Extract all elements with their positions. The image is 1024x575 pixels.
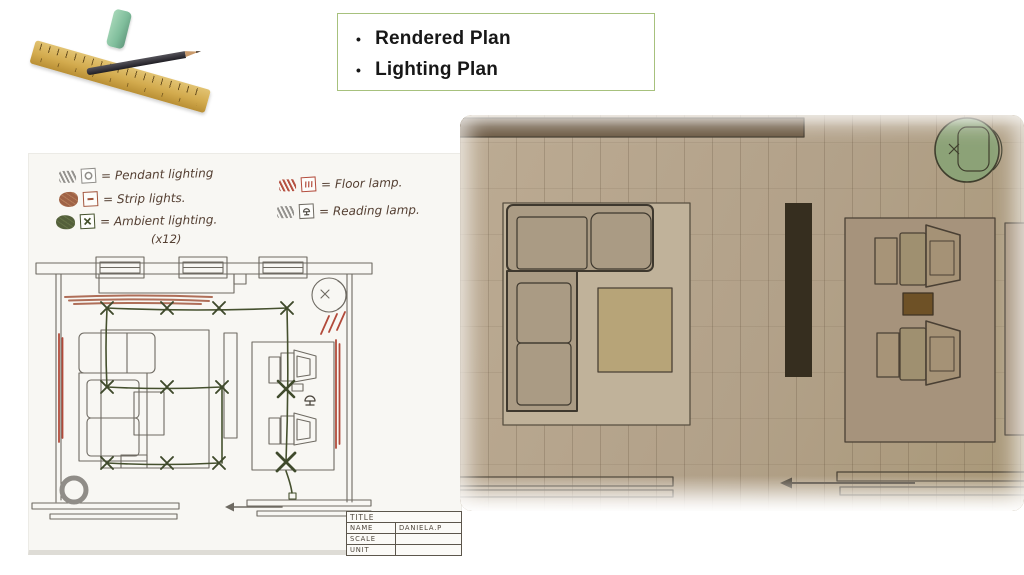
reading-lamp-symbol-icon — [299, 203, 315, 219]
legend-label: = Strip lights. — [103, 190, 186, 205]
agenda-item: • Rendered Plan — [350, 24, 642, 55]
legend-label: = Reading lamp. — [319, 202, 420, 218]
title-block: TITLE NAME DANIELA.P SCALE UNIT — [346, 511, 462, 556]
green-scribble-icon — [56, 215, 75, 229]
eraser-icon — [106, 8, 133, 49]
agenda-item: • Lighting Plan — [350, 55, 642, 86]
title-block-value — [396, 545, 461, 555]
agenda-list: • Rendered Plan • Lighting Plan — [350, 24, 642, 86]
title-block-label: NAME — [347, 523, 396, 533]
rendered-plan-photo — [460, 115, 1024, 511]
legend-item-pendant: = Pendant lighting — [59, 165, 214, 184]
rendered-plan-drawing — [460, 115, 1024, 511]
sofa-outline — [79, 333, 155, 468]
ambient-symbol-icon — [80, 213, 96, 229]
brown-scribble-icon — [59, 192, 78, 207]
agenda-item-label: Lighting Plan — [375, 55, 498, 86]
legend-label: = Ambient lighting. — [100, 212, 217, 228]
wall-band — [460, 118, 804, 137]
bullet-icon: • — [356, 28, 361, 51]
coffee-table — [598, 288, 672, 372]
pendant-plan-mark — [62, 478, 86, 502]
window-symbols — [96, 257, 307, 278]
gray-scribble-icon — [277, 205, 294, 217]
floor-lamp-symbol-icon — [301, 176, 317, 192]
stationery-clipart — [28, 6, 238, 116]
strip-lights-symbol-icon — [83, 191, 99, 207]
title-block-label: SCALE — [347, 534, 396, 544]
bottom-walls — [460, 472, 1024, 497]
dark-console — [785, 203, 812, 377]
slide: • Rendered Plan • Lighting Plan = Pendan… — [0, 0, 1024, 575]
lighting-plan-sketch: = Pendant lighting = Strip lights. = Amb… — [28, 153, 462, 555]
reading-area-outline — [252, 342, 334, 470]
title-block-value — [396, 534, 461, 544]
entry-arrow-icon — [225, 503, 282, 512]
legend-label: = Pendant lighting — [101, 165, 214, 182]
round-chair-outline — [312, 278, 346, 312]
side-table-center — [903, 293, 933, 315]
bullet-icon: • — [356, 59, 361, 82]
legend-label: = Floor lamp. — [321, 175, 403, 191]
partial-rug — [1005, 223, 1024, 435]
title-block-value: DANIELA.P — [396, 523, 461, 533]
reading-lamp-plan-icon — [305, 396, 315, 405]
green-round-chair — [935, 118, 1002, 182]
console-outline — [99, 274, 234, 293]
console-step — [234, 274, 246, 284]
shelf-outline — [224, 333, 237, 438]
red-scribble-icon — [279, 179, 296, 191]
ambient-count-note: (x12) — [151, 232, 181, 246]
title-block-label: UNIT — [347, 545, 396, 555]
pendant-symbol-icon — [81, 168, 97, 184]
gray-scribble-icon — [59, 170, 76, 182]
ambient-light-x-marks — [101, 302, 295, 471]
agenda-box: • Rendered Plan • Lighting Plan — [337, 13, 655, 91]
legend-item-floor-lamp: = Floor lamp. — [279, 174, 403, 192]
legend-item-strip: = Strip lights. — [59, 190, 186, 207]
strip-light-marks — [65, 296, 212, 305]
legend-item-ambient: = Ambient lighting. — [56, 212, 217, 230]
agenda-item-label: Rendered Plan — [375, 24, 511, 55]
title-block-title: TITLE — [347, 512, 461, 522]
legend-item-reading-lamp: = Reading lamp. — [277, 202, 420, 219]
